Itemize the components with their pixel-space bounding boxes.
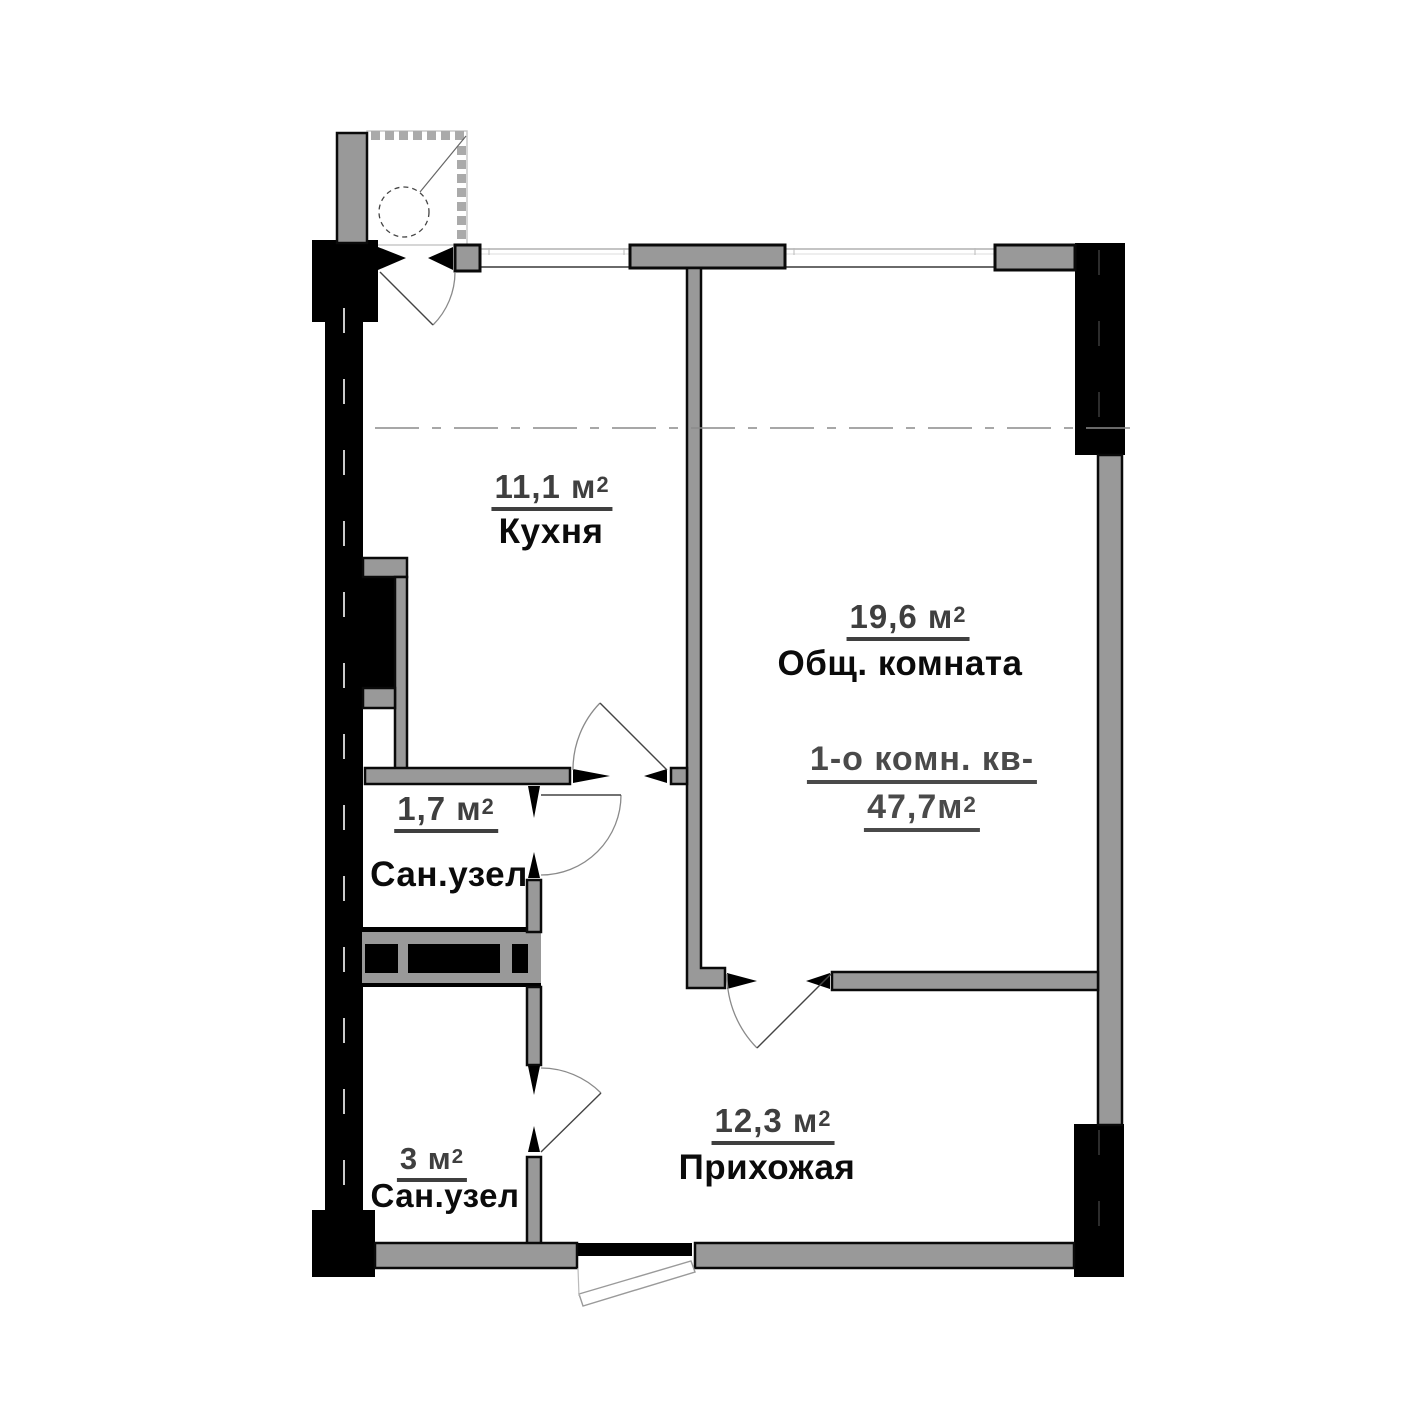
floor-plan: 11,1 м2 Кухня 19,6 м2 Общ. комната 1-о к… xyxy=(0,0,1417,1417)
room-label-kitchen-name: Кухня xyxy=(499,512,604,552)
room-label-hall-name: Прихожая xyxy=(679,1148,856,1188)
balcony-dotted-border xyxy=(371,131,466,239)
shower-symbol xyxy=(379,187,429,237)
floor-plan-drawing xyxy=(0,0,1417,1417)
room-label-bath2-area: 3 м2 xyxy=(397,1141,467,1182)
room-label-bath1-name: Сан.узел xyxy=(370,855,528,895)
gray-walls xyxy=(337,133,1122,1268)
door-jambs xyxy=(378,247,830,1152)
room-label-living-name: Общ. комната xyxy=(778,644,1023,684)
room-label-bath1-area: 1,7 м2 xyxy=(394,790,498,833)
room-label-kitchen-area: 11,1 м2 xyxy=(491,468,612,511)
door-kitchen xyxy=(573,703,667,770)
door-balcony xyxy=(380,272,455,325)
door-living xyxy=(727,974,831,1048)
apartment-title: 1-о комн. кв- 47,7м2 xyxy=(807,740,1037,832)
room-label-bath2-name: Сан.узел xyxy=(371,1177,520,1215)
balcony xyxy=(367,131,467,245)
room-label-living-area: 19,6 м2 xyxy=(847,598,970,641)
door-entry xyxy=(578,1261,695,1306)
room-label-hall-area: 12,3 м2 xyxy=(712,1102,835,1145)
door-bath2 xyxy=(541,1068,601,1152)
door-bath1 xyxy=(541,795,621,875)
